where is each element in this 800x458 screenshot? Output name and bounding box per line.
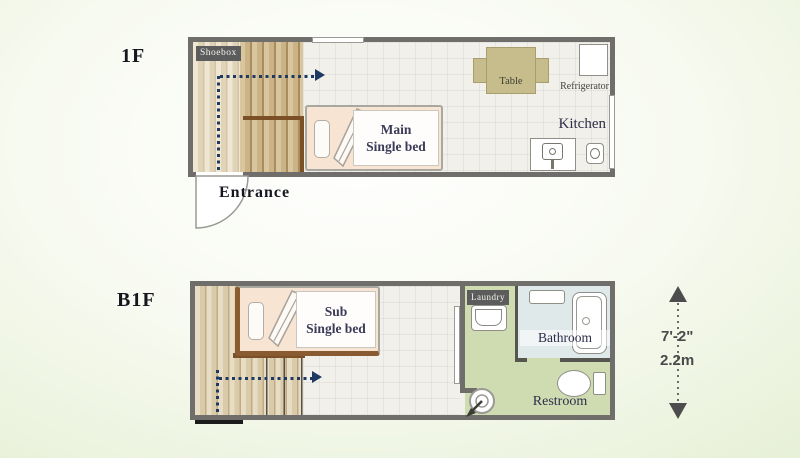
route-path-horizontal-b1f [219,377,312,380]
sliding-door-icon [454,306,460,384]
kitchen-sink-icon [530,138,576,171]
door-pivot-icon [464,387,498,421]
bathroom-label: Bathroom [520,330,610,346]
main-bed-line1: Main [381,121,412,138]
stove-icon [586,143,604,164]
pillow-icon [248,302,264,340]
dimension-arrow-down-icon [669,403,687,419]
sub-bed-icon: Sub Single bed [235,286,380,356]
plan-b1f: Sub Single bed Laundry Bathroom Restroom [190,281,615,420]
kitchen-label: Kitchen [559,116,606,133]
sub-bed-line1: Sub [325,303,348,320]
bathroom-room: Bathroom [515,286,610,358]
toilet-bowl-icon [557,370,591,397]
floor-label-1f: 1F [121,45,145,68]
dimension-imperial: 7'-2" [661,328,693,345]
route-path-vertical-1f [217,76,220,186]
bathroom-sink-icon [529,290,565,304]
main-bed-icon: Main Single bed [305,105,443,171]
dimension-metric: 2.2m [660,352,694,369]
shoebox-label: Shoebox [196,46,241,61]
refrigerator-label: Refrigerator [560,81,609,92]
stair-rail-h [243,116,304,120]
window-right-icon [609,95,615,169]
route-arrow-icon-1f [315,69,325,81]
main-bed-line2: Single bed [366,138,426,155]
restroom-label: Restroom [518,394,602,410]
toilet-tank-icon [593,372,606,395]
divider-wall [460,286,465,388]
pillow-icon [314,120,330,158]
staircase-1f [240,42,303,172]
sub-bed-label: Sub Single bed [296,291,376,348]
window-top-icon [312,37,364,43]
floorplan-canvas: 1F Shoebox Main Single bed [0,0,800,458]
route-arrow-icon-b1f [312,371,322,383]
main-bed-label: Main Single bed [353,110,439,166]
plan-1f: Shoebox Main Single bed Table Refrigerat… [188,37,615,177]
step-marker [195,420,243,424]
dimension-arrow-up-icon [669,286,687,302]
stair-rail-v [300,116,304,172]
sub-bed-line2: Single bed [306,320,366,337]
table-label: Table [485,76,537,87]
laundry-label: Laundry [467,290,509,305]
refrigerator-icon [579,44,608,76]
route-path-horizontal-1f [220,75,315,78]
bathroom-wall-left [515,358,527,362]
staircase-b1f [250,356,303,415]
chair-right-icon [535,58,549,83]
entrance-label: Entrance [219,184,290,202]
floor-label-b1f: B1F [117,289,156,312]
bathroom-wall-right [560,358,610,362]
washing-machine-icon [471,305,507,331]
